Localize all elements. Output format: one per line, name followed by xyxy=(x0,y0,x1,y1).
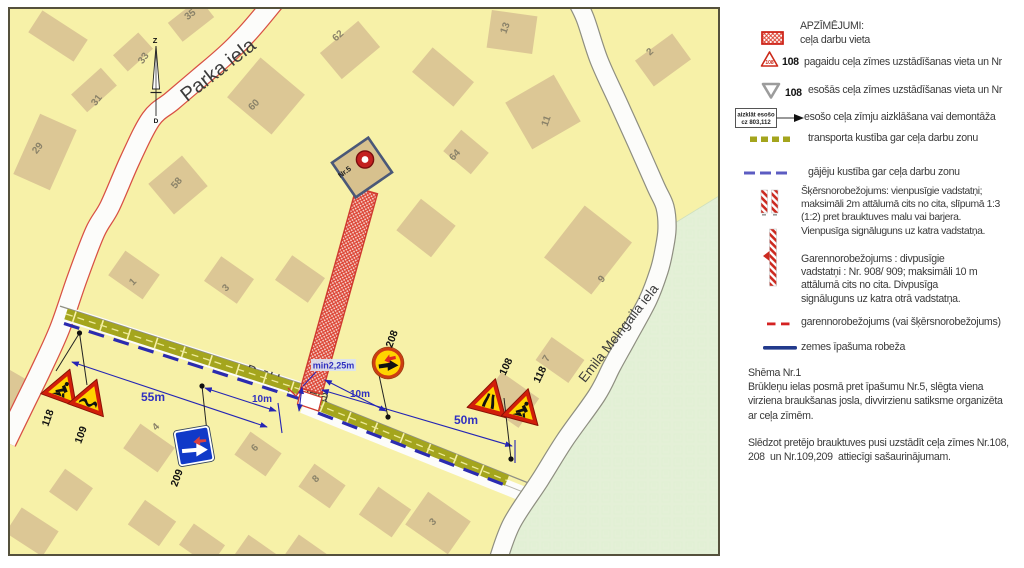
svg-text:108: 108 xyxy=(765,60,774,66)
svg-text:cz 803,112: cz 803,112 xyxy=(741,120,771,126)
svg-text:aizklāt esošo: aizklāt esošo xyxy=(737,113,775,119)
